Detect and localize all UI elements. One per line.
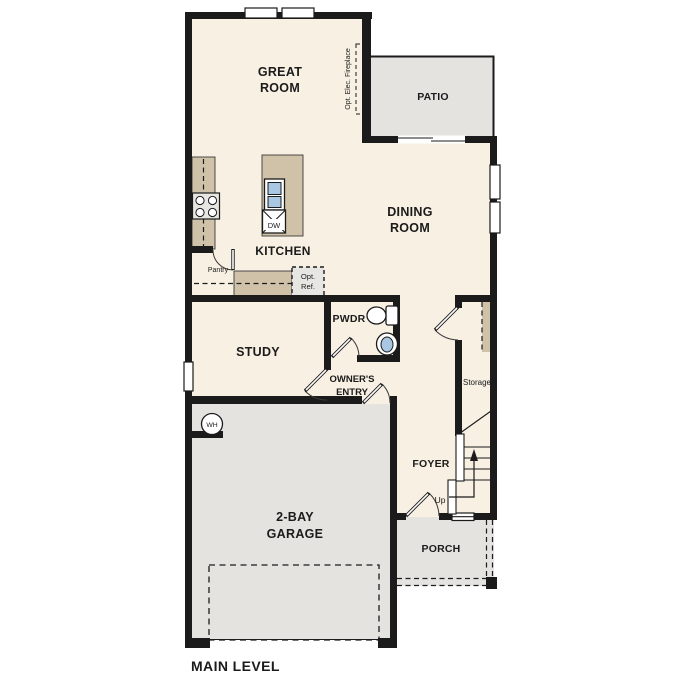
- dishwasher-label: DW: [268, 221, 281, 230]
- great-room-label-line2: ROOM: [260, 81, 300, 95]
- wall-segment: [324, 295, 331, 370]
- storage-label: Storage: [463, 378, 492, 387]
- patio-label: PATIO: [417, 91, 449, 103]
- dining-room-label-line2: ROOM: [390, 221, 430, 235]
- wall-segment: [362, 136, 398, 143]
- garage-label-line2: GARAGE: [267, 527, 324, 541]
- owners-entry-label-line1: OWNER'S: [329, 374, 374, 385]
- opt-ref-label-line2: Ref.: [301, 282, 315, 291]
- window: [282, 8, 314, 18]
- opt-ref: Opt. Ref.: [292, 267, 324, 297]
- wall-segment: [185, 12, 192, 648]
- wall-segment: [185, 295, 400, 302]
- patio-sliding-door: [398, 136, 465, 144]
- burner-icon: [196, 196, 204, 204]
- wall-segment: [390, 396, 397, 648]
- lavatory-basin: [381, 337, 393, 352]
- burner-icon: [208, 208, 216, 216]
- owners-entry-label-line2: ENTRY: [336, 387, 369, 398]
- island-sink: [265, 179, 285, 210]
- plan-title: MAIN LEVEL: [191, 658, 280, 674]
- window: [490, 202, 500, 233]
- burner-icon: [196, 208, 204, 216]
- kitchen-label: KITCHEN: [255, 244, 310, 258]
- water-heater-label: WH: [206, 422, 217, 429]
- wall-segment: [185, 12, 372, 19]
- wall-segment: [357, 355, 400, 362]
- great-room-label-line1: GREAT: [258, 65, 302, 79]
- toilet-bowl: [367, 307, 386, 324]
- stove: [193, 193, 220, 219]
- storage-shelf: [482, 302, 491, 352]
- sink-bowl: [268, 183, 281, 195]
- wall-segment: [474, 513, 497, 520]
- wall-segment: [395, 513, 406, 520]
- opt-ref-label-line1: Opt.: [301, 272, 315, 281]
- wall-segment: [185, 638, 210, 648]
- window: [490, 165, 500, 199]
- garage-label-line1: 2-BAY: [276, 510, 314, 524]
- dishwasher: DW: [263, 210, 286, 233]
- porch-label: PORCH: [422, 543, 461, 555]
- wall-segment: [185, 246, 213, 253]
- floor-plan-page: DW Opt. Ref. Opt. Elec. Fireplace: [0, 0, 687, 687]
- powder-room-label: PWDR: [333, 313, 366, 325]
- dining-room-label-line1: DINING: [387, 205, 433, 219]
- pantry-label: Pantry: [208, 267, 229, 274]
- stair-rail: [456, 434, 464, 481]
- wall-segment: [455, 295, 497, 302]
- wall-segment: [378, 638, 397, 648]
- fireplace-label: Opt. Elec. Fireplace: [345, 48, 352, 110]
- porch-column: [486, 577, 497, 589]
- window: [245, 8, 277, 18]
- toilet-tank: [386, 306, 398, 325]
- floor-plan-drawing: DW Opt. Ref. Opt. Elec. Fireplace: [0, 0, 687, 687]
- wall-segment: [362, 12, 371, 143]
- burner-icon: [208, 196, 216, 204]
- water-heater: WH: [202, 414, 223, 435]
- study-label: STUDY: [236, 345, 280, 359]
- sink-bowl: [268, 197, 281, 208]
- foyer-label: FOYER: [412, 458, 449, 470]
- wall-segment: [455, 340, 462, 436]
- up-label: Up: [435, 495, 446, 505]
- slider-opening: [398, 136, 465, 144]
- window: [184, 362, 193, 391]
